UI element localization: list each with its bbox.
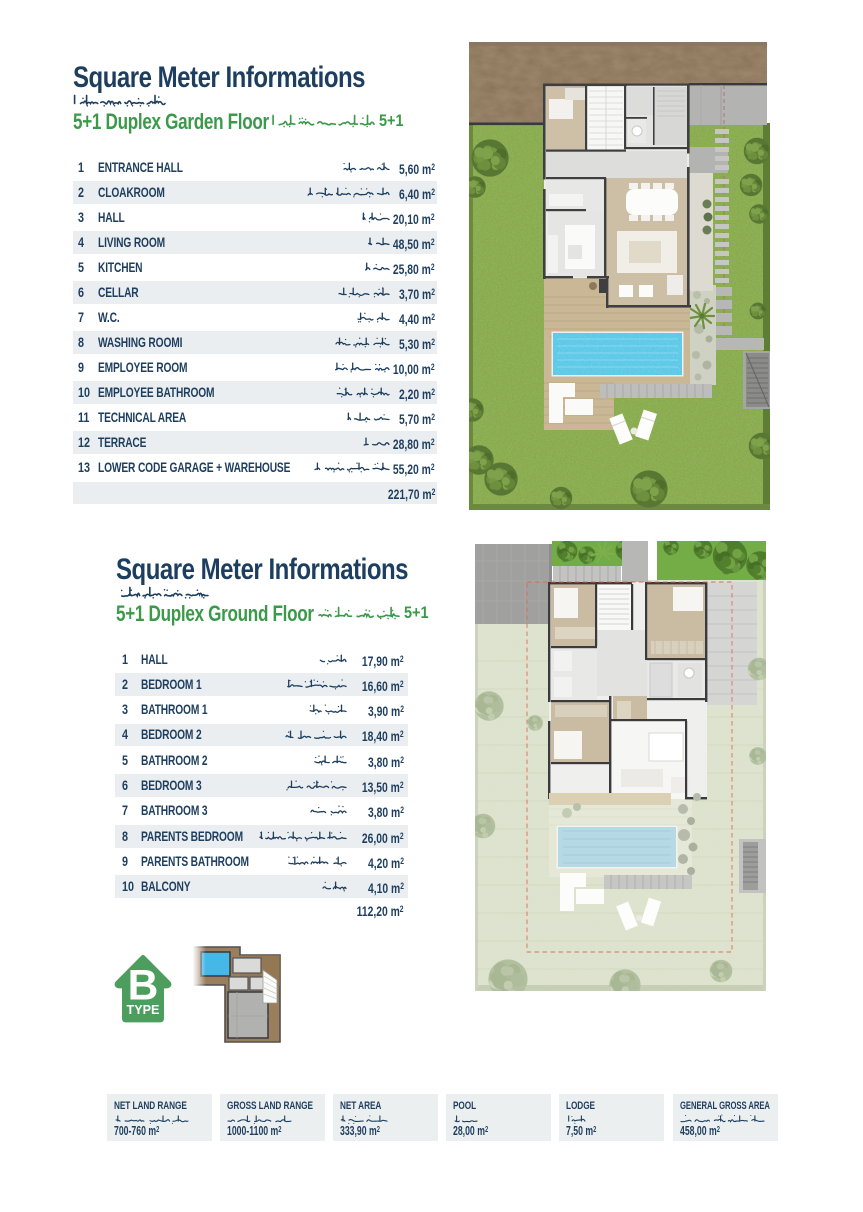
svg-text:TYPE: TYPE [127,1002,160,1017]
